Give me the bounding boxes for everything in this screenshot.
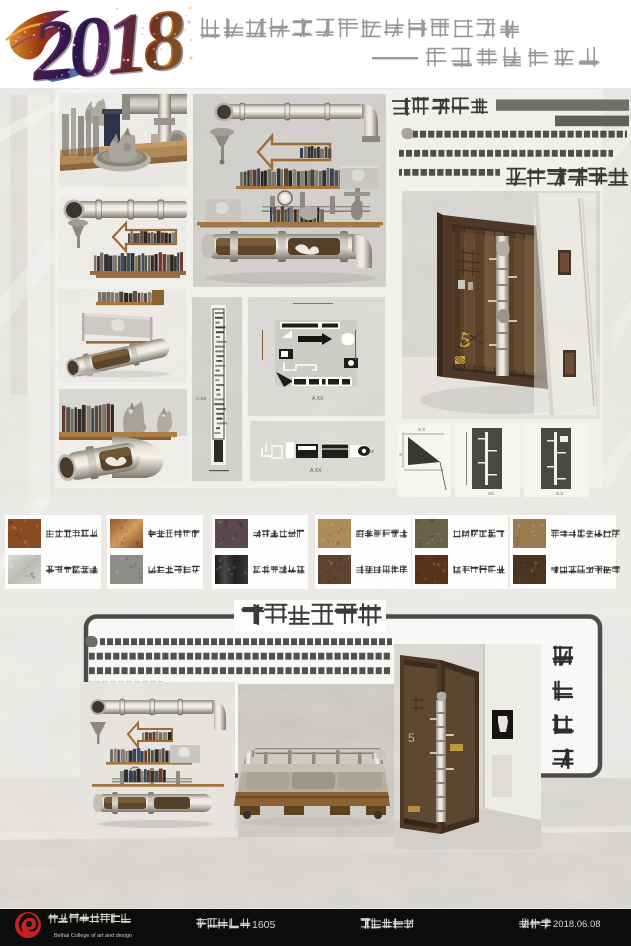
svg-text:A.XX: A.XX: [196, 396, 206, 401]
svg-text:5: 5: [408, 731, 415, 745]
svg-text:XX: XX: [368, 449, 374, 454]
svg-text:XX: XX: [488, 491, 494, 496]
svg-text:X.X: X.X: [556, 491, 563, 496]
svg-text:2018: 2018: [27, 0, 190, 101]
svg-text:X: X: [399, 452, 402, 457]
svg-text:X.X: X.X: [418, 427, 425, 432]
svg-text:Beihai College of art and desi: Beihai College of art and design: [54, 933, 132, 939]
svg-text:1605: 1605: [252, 919, 276, 931]
svg-text:A.XX: A.XX: [310, 468, 322, 474]
svg-text:2018.06.08: 2018.06.08: [553, 919, 601, 930]
svg-text:A.XX: A.XX: [312, 396, 324, 402]
